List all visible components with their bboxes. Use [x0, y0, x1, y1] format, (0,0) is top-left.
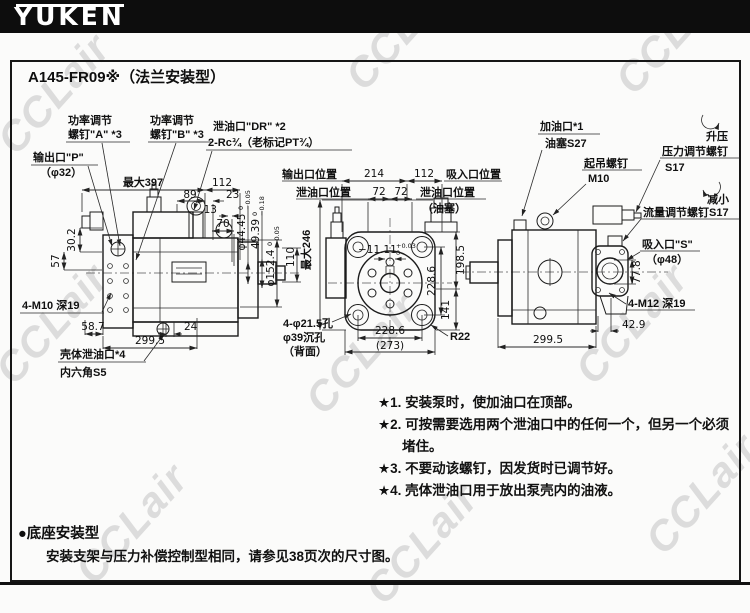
svg-text:198.5: 198.5 — [455, 245, 467, 275]
notes-block: ★1. 安装泵时，使加油口在顶部。 ★2. 可按需要选用两个泄油口中的任何一个，… — [378, 392, 740, 502]
callout-counterbore: φ39沉孔 — [283, 330, 325, 344]
svg-text:228.6: 228.6 — [426, 266, 438, 296]
base-mount-text: 安装支架与压力补偿控制型相同，请参见38页次的尺寸图。 — [46, 545, 399, 565]
dim-70: 70 — [216, 218, 229, 230]
dim-30-2: 30.2 — [66, 228, 78, 251]
svg-text:110: 110 — [285, 247, 297, 267]
dim-228-6-vertical: 228.6 — [426, 266, 438, 296]
dim-299-5-right: 299.5 — [533, 334, 563, 346]
dim-58-7: 58.7 — [81, 321, 104, 333]
increase-arrow-icon — [702, 115, 719, 129]
dim-13: 13 — [204, 204, 217, 216]
svg-text:57: 57 — [50, 254, 62, 267]
svg-text:−0.18: −0.18 — [258, 196, 266, 216]
callout-flow-screw: 流量调节螺钉S17 — [643, 205, 729, 219]
dim-110: 110 — [285, 247, 297, 267]
dim-72-a: 72 — [372, 186, 385, 198]
svg-text:φ152.4: φ152.4 — [265, 249, 277, 286]
dim-57: 57 — [50, 254, 62, 267]
callout-outlet-p-size: （φ32） — [40, 166, 82, 179]
dim-273: (273) — [376, 340, 404, 352]
dim-max-length: 最大397 — [123, 175, 163, 189]
callout-case-drain-hex: 内六角S5 — [60, 365, 106, 379]
note-3: ★3. 不要动该螺钉，因发货时已调节好。 — [378, 458, 740, 480]
callout-drain-dr-thread: 2-Rc¾（老标记PT¾） — [208, 135, 319, 149]
callout-fill-plug: 油塞S27 — [545, 136, 587, 150]
dim-key-offset: −11.11 +0.03 0 — [358, 242, 416, 257]
svg-text:77.8: 77.8 — [631, 260, 643, 283]
dim-23: 23 — [226, 189, 239, 201]
callout-bolt-holes: 4-φ21.5孔 — [283, 317, 333, 330]
bottom-rule — [0, 582, 750, 585]
callout-reduce: 减小 — [707, 192, 729, 206]
callout-lifting-screw-size: M10 — [588, 173, 609, 185]
callout-case-drain: 壳体泄油口*4 — [59, 347, 126, 361]
label-drain-position-left: 泄油口位置 — [296, 185, 351, 199]
svg-text:49.39: 49.39 — [250, 219, 262, 249]
callout-raise-pressure: 升压 — [706, 129, 728, 143]
callout-outlet-p: 输出口"P" — [33, 150, 84, 164]
callout-suction-port: 吸入口"S" — [642, 238, 693, 251]
svg-text:−11.11: −11.11 — [358, 244, 397, 256]
callout-power-screw-a2: 螺钉"A" *3 — [68, 127, 122, 141]
svg-text:−0.05: −0.05 — [273, 226, 281, 246]
svg-text:30.2: 30.2 — [66, 228, 78, 251]
callout-mount-holes-m10: 4-M10 深19 — [22, 298, 79, 312]
svg-text:141: 141 — [440, 300, 452, 320]
right-view-drawing: 加油口*1 油塞S27 起吊螺钉 M10 压力调节螺钉 S17 升压 减小 流量… — [460, 115, 740, 348]
dim-89: 89 — [183, 189, 196, 201]
label-drain-position-right: 泄油口位置 — [420, 185, 475, 199]
dim-299-5-left: 299.5 — [135, 335, 165, 347]
dim-214: 214 — [364, 168, 384, 180]
callout-pressure-screw: 压力调节螺钉 — [662, 144, 728, 158]
dim-77-8: 77.8 — [631, 260, 643, 283]
base-mount-heading: ●底座安装型 — [18, 522, 99, 543]
middle-view-drawing: 214 112 输出口位置 吸入口位置 72 72 泄油口位置 泄油口位置 （油… — [282, 167, 502, 358]
dim-112: 112 — [212, 177, 232, 189]
svg-text:0: 0 — [396, 249, 400, 257]
svg-text:最大246: 最大246 — [299, 230, 313, 270]
dim-72-b: 72 — [394, 186, 407, 198]
label-suction-position: 吸入口位置 — [446, 167, 501, 181]
callout-suction-size: （φ48） — [646, 253, 688, 266]
callout-r22: R22 — [450, 331, 470, 343]
label-drain-plug: （油塞） — [422, 201, 466, 215]
label-outlet-position: 输出口位置 — [282, 167, 337, 181]
dim-max-height: 最大246 — [299, 230, 313, 270]
dim-24: 24 — [184, 321, 198, 333]
callout-power-screw-b: 功率调节 — [150, 113, 194, 127]
dim-228-6-horizontal: 228.6 — [375, 325, 405, 337]
dim-141: 141 — [440, 300, 452, 320]
note-4: ★4. 壳体泄油口用于放出泵壳内的油液。 — [378, 480, 740, 502]
callout-mount-holes-m12: 4-M12 深19 — [628, 296, 685, 310]
note-2: ★2. 可按需要选用两个泄油口中的任何一个，但另一个必须 — [378, 414, 740, 436]
callout-power-screw-b2: 螺钉"B" *3 — [150, 127, 204, 141]
callout-backside: （背面） — [283, 344, 327, 358]
dim-198-5: 198.5 — [455, 245, 467, 275]
callout-drain-dr: 泄油口"DR" *2 — [213, 119, 286, 133]
callout-fill-port: 加油口*1 — [539, 119, 583, 133]
callout-pressure-screw-size: S17 — [665, 162, 685, 174]
note-1: ★1. 安装泵时，使加油口在顶部。 — [378, 392, 740, 414]
svg-text:−0.05: −0.05 — [244, 190, 252, 210]
dim-112-mid: 112 — [414, 168, 434, 180]
dim-pilot-diameter: φ152.4 0 −0.05 — [265, 226, 281, 286]
callout-power-screw-a: 功率调节 — [68, 113, 112, 127]
dim-42-9: 42.9 — [622, 319, 645, 331]
callout-lifting-screw: 起吊螺钉 — [583, 156, 628, 170]
pump-dimension-drawing: 功率调节 螺钉"A" *3 功率调节 螺钉"B" *3 泄油口"DR" *2 2… — [0, 0, 750, 593]
dim-key-height: 49.39 0 −0.18 — [250, 196, 266, 249]
svg-text:φ44.45: φ44.45 — [236, 214, 248, 251]
note-2-cont: 堵住。 — [378, 436, 740, 458]
